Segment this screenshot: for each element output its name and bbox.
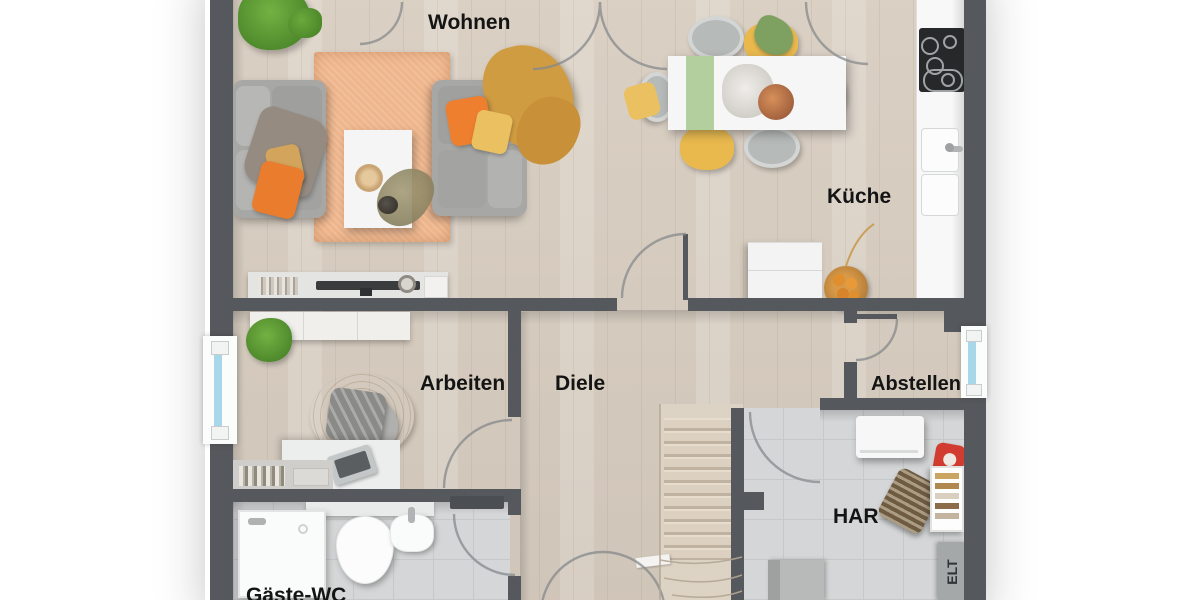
window-cap	[211, 341, 229, 355]
room-label-kueche: Küche	[827, 185, 891, 209]
shower-drain	[298, 524, 308, 534]
storage-box	[293, 468, 329, 486]
cabinet-divider	[303, 312, 304, 340]
shelf-item	[935, 513, 959, 519]
sofa-seat-cushion	[438, 150, 486, 208]
storage-shelf	[930, 466, 964, 532]
bucket-inside	[942, 452, 957, 467]
table-runner	[686, 56, 714, 130]
wall-abstellen-har	[820, 398, 964, 410]
shelf-item	[935, 503, 959, 509]
wall-wc-diele-upper	[508, 502, 521, 515]
kitchen-cabinet	[748, 242, 822, 301]
faucet-base	[945, 143, 954, 152]
window-cap	[966, 330, 982, 342]
tv-stand	[360, 288, 372, 296]
storage-box-gray	[768, 560, 824, 600]
room-label-abstellen: Abstellen	[871, 373, 961, 396]
wall-abstellen-west-lower	[844, 362, 857, 402]
cabinet-divider	[748, 270, 822, 271]
dining-chair	[744, 126, 800, 168]
dining-chair	[680, 126, 734, 170]
tv-sideboard	[248, 272, 448, 299]
cooktop	[919, 28, 965, 92]
room-label-arbeiten: Arbeiten	[420, 372, 505, 396]
cabinet-divider	[357, 312, 358, 340]
electrical-panel: ELT	[938, 542, 966, 600]
wall-wohnen-south-east	[688, 298, 964, 311]
sofa-back-cushion	[488, 150, 522, 208]
wall-arbeiten-diele	[508, 311, 521, 417]
sink-basin	[921, 174, 959, 216]
room-label-diele: Diele	[555, 372, 605, 396]
office-chair-cushion	[325, 386, 388, 445]
door-leaf-abstellen	[856, 314, 897, 319]
shower-faucet	[248, 518, 266, 525]
wall-wohnen-south-west	[233, 298, 617, 311]
heat-pump	[856, 416, 924, 458]
vent	[860, 450, 918, 453]
window-cap	[966, 384, 982, 396]
decor-ring	[398, 275, 416, 293]
dining-chair	[688, 16, 744, 60]
wall-stub-har	[744, 492, 764, 510]
box-edge	[768, 560, 780, 600]
room-label-har: HAR	[833, 505, 879, 529]
door-leaf-diele	[683, 234, 688, 300]
plant	[246, 318, 292, 362]
wall-exterior-right	[964, 0, 986, 600]
decor-plate	[355, 164, 383, 192]
vase	[378, 196, 398, 214]
room-label-wohnen: Wohnen	[428, 11, 510, 35]
shelf-item	[935, 483, 959, 489]
window	[203, 336, 237, 444]
plant-frond	[288, 8, 322, 38]
window-glass	[968, 340, 976, 384]
books	[258, 277, 298, 295]
room-label-elt: ELT	[944, 550, 960, 594]
shelf-item	[935, 493, 959, 499]
window	[961, 326, 987, 398]
books	[239, 466, 285, 486]
wall-wc-diele-lower	[508, 576, 521, 600]
window-cap	[211, 426, 229, 440]
radiator	[450, 496, 504, 509]
wall-har-west	[731, 408, 744, 600]
room-label-gaeste-wc: Gäste-WC	[246, 584, 346, 600]
washbasin	[390, 514, 434, 552]
fruit	[846, 278, 857, 289]
dining-table	[668, 56, 846, 130]
bookshelf	[233, 460, 333, 490]
shadow-wall-diele	[520, 312, 530, 600]
kitchen-sink	[921, 126, 961, 218]
window-glass	[214, 352, 222, 428]
wall-exterior-left	[210, 0, 233, 600]
floorplan-canvas: ELT	[0, 0, 1200, 600]
decor-bowl	[758, 84, 794, 120]
decor-box	[424, 276, 448, 298]
fruit	[833, 274, 845, 286]
basin-faucet	[408, 507, 415, 523]
shelf-item	[935, 473, 959, 479]
